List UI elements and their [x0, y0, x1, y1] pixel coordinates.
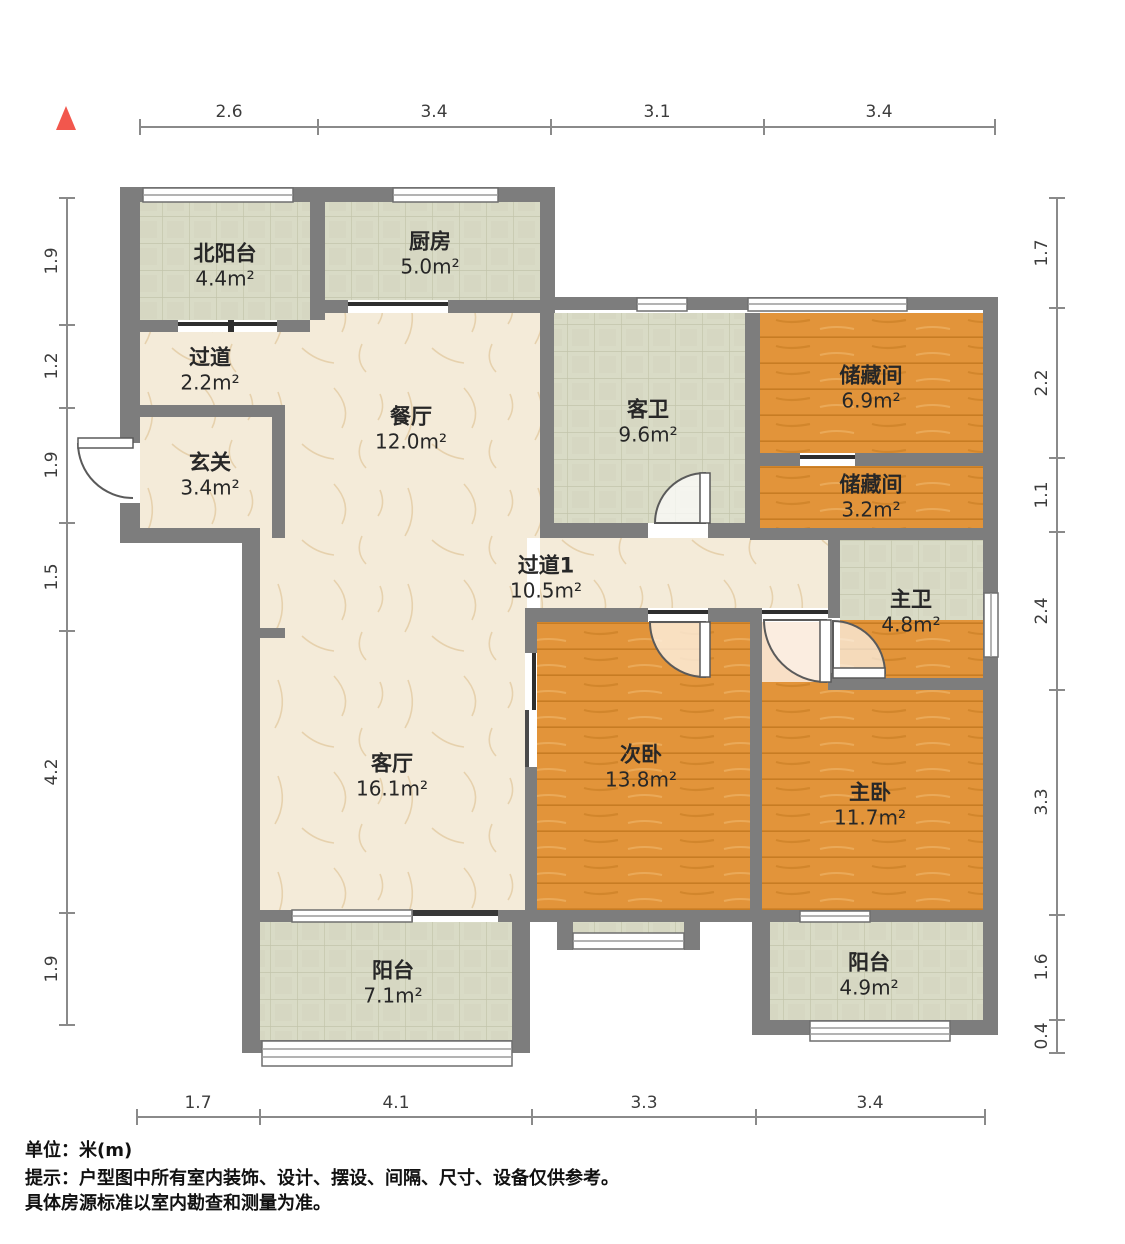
disclaimer-line1: 提示：户型图中所有室内装饰、设计、摆设、间隔、尺寸、设备仅供参考。 — [25, 1166, 619, 1191]
dim-line-right — [1049, 198, 1065, 1053]
floor-balcony-right — [770, 922, 983, 1020]
dim-line-bottom — [137, 1109, 985, 1125]
floorplan-page: 北阳台4.4m² 厨房5.0m² 过道2.2m² 玄关3.4m² 餐厅12.0m… — [0, 0, 1125, 1244]
floor-guest-bath — [554, 313, 745, 523]
floor-kitchen — [325, 202, 540, 300]
floor-storage-small — [760, 466, 983, 528]
dim-line-left — [59, 198, 75, 1025]
floor-second-bedroom — [537, 622, 750, 910]
floor-living-room — [260, 538, 527, 910]
floor-north-balcony — [140, 202, 310, 320]
floor-storage-large — [760, 313, 983, 453]
floor-balcony-left — [260, 922, 512, 1040]
window-guest-bath — [637, 298, 687, 311]
window-balcony-right — [810, 1021, 950, 1041]
window-master-bedroom — [800, 911, 870, 922]
disclaimer-line2: 具体房源标准以室内勘查和测量为准。 — [25, 1191, 331, 1216]
north-icon — [56, 106, 76, 130]
window-master-bath — [984, 593, 998, 657]
window-balcony-left — [262, 1041, 512, 1066]
dim-line-top — [140, 119, 995, 135]
unit-note: 单位：米(m) — [25, 1138, 132, 1163]
window-equipment-bay — [573, 933, 684, 949]
window-kitchen — [393, 188, 498, 202]
floorplan-drawing — [0, 0, 1125, 1244]
window-north-balcony — [143, 188, 293, 202]
window-storage — [748, 298, 907, 311]
